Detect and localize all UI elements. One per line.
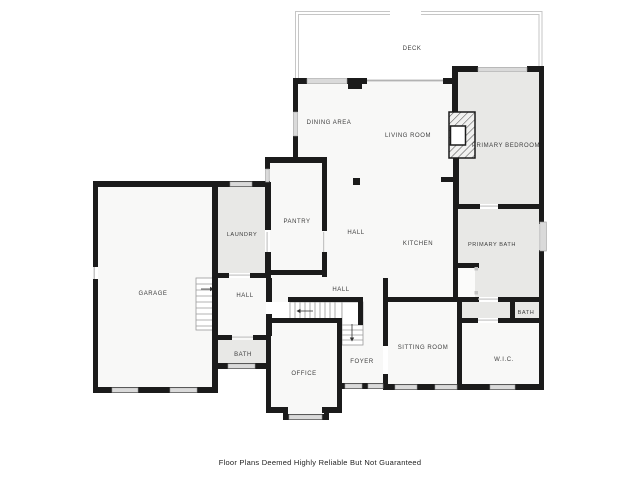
room-label-primary-bedroom: PRIMARY BEDROOM	[472, 143, 540, 149]
room-label-wic: W.I.C.	[494, 357, 514, 363]
floor-plan-page: DECK DINING AREA LIVING ROOM PRIMARY BED…	[0, 0, 640, 480]
room-label-hall-center: HALL	[332, 287, 349, 293]
room-label-kitchen: KITCHEN	[403, 241, 433, 247]
primary-bath-closet	[458, 268, 475, 297]
room-label-foyer: FOYER	[350, 359, 374, 365]
disclaimer-text: Floor Plans Deemed Highly Reliable But N…	[0, 458, 640, 467]
room-label-bath-right: BATH	[518, 310, 535, 316]
room-label-primary-bath: PRIMARY BATH	[468, 242, 516, 248]
room-label-dining: DINING AREA	[307, 120, 352, 126]
room-label-laundry: LAUNDRY	[227, 232, 257, 238]
room-label-living: LIVING ROOM	[385, 133, 431, 139]
room-label-pantry: PANTRY	[283, 219, 310, 225]
floor-plan-drawing: DECK DINING AREA LIVING ROOM PRIMARY BED…	[0, 0, 640, 480]
room-label-garage: GARAGE	[139, 291, 168, 297]
room-label-hall-upper: HALL	[347, 230, 364, 236]
room-label-office: OFFICE	[291, 371, 316, 377]
room-label-sitting: SITTING ROOM	[398, 345, 449, 351]
room-label-deck: DECK	[403, 46, 422, 52]
room-label-bath-left: BATH	[234, 352, 252, 358]
column-post	[353, 178, 360, 185]
room-label-hall-left: HALL	[236, 293, 253, 299]
fireplace	[449, 112, 475, 158]
sliding-door-line	[367, 80, 445, 82]
